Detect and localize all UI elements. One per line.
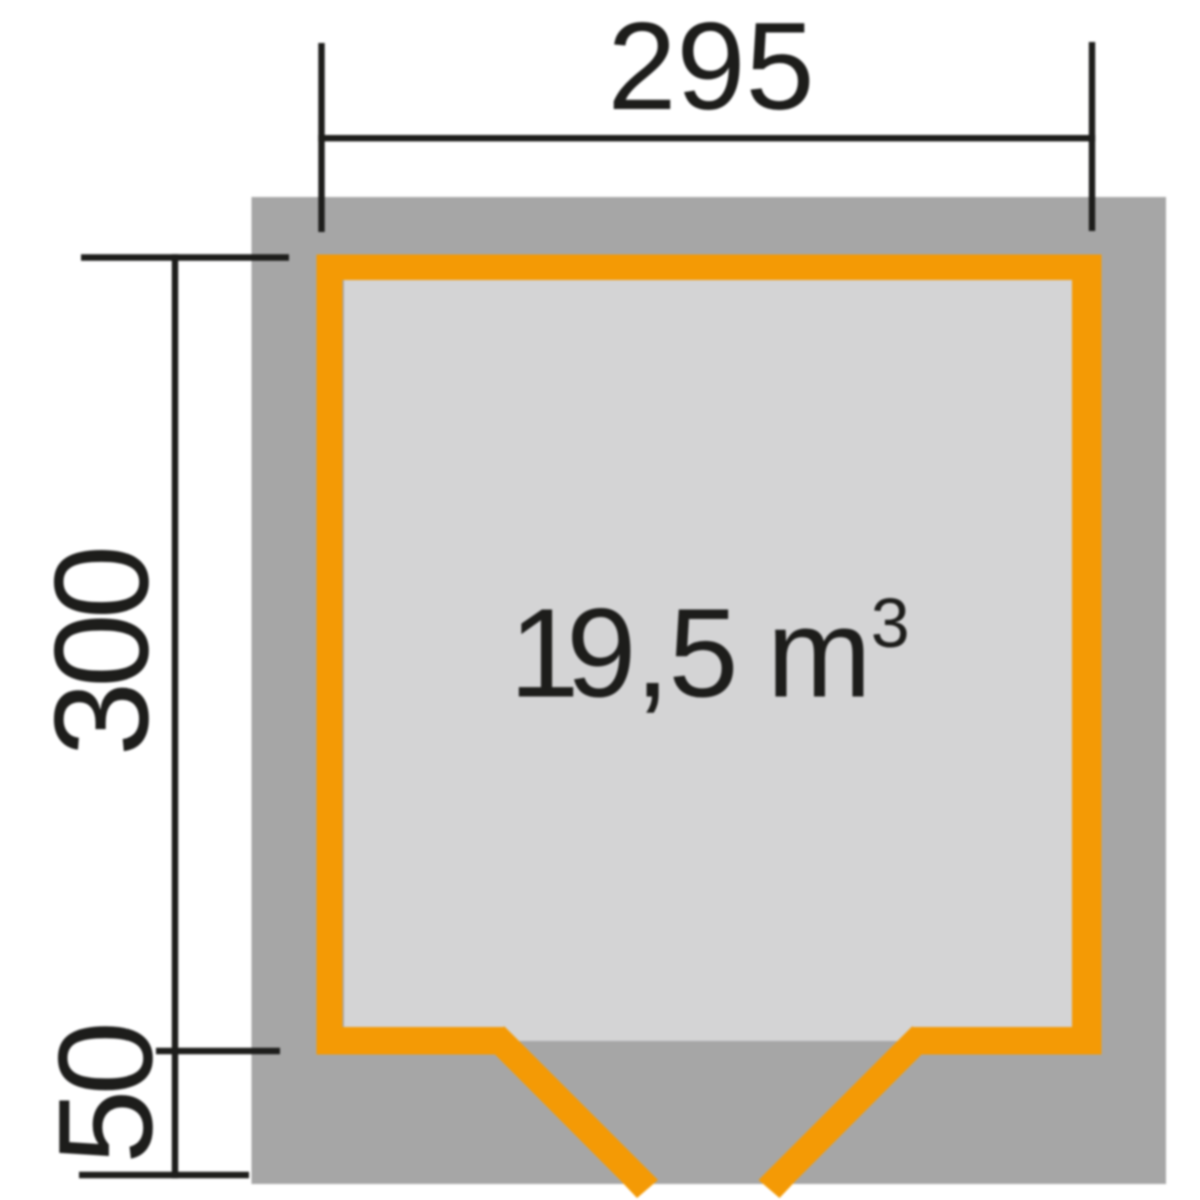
svg-text:5: 5 — [668, 583, 738, 724]
svg-text:295: 295 — [608, 0, 815, 136]
svg-text:50: 50 — [32, 1026, 181, 1165]
svg-text:m: m — [767, 583, 872, 724]
svg-text:3: 3 — [871, 584, 910, 662]
svg-text:,: , — [635, 583, 670, 724]
svg-text:300: 300 — [28, 549, 177, 756]
svg-text:9: 9 — [566, 583, 636, 724]
